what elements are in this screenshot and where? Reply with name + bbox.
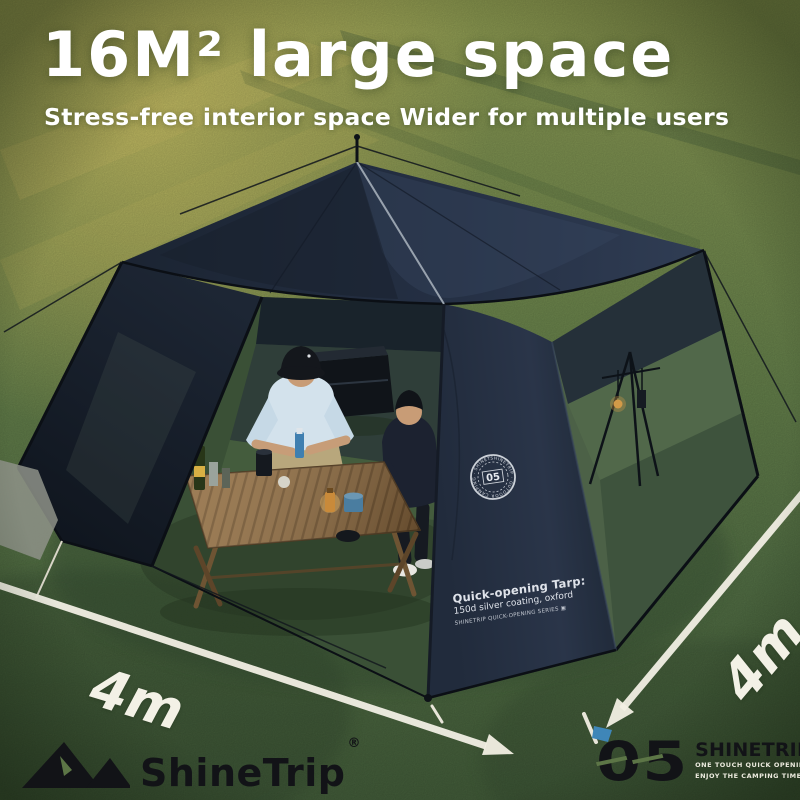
subheadline: Stress-free interior space Wider for mul…: [44, 103, 729, 131]
brand-logo-left: ShineTrip®: [20, 736, 358, 790]
headline: 16M² large space: [42, 22, 674, 87]
brand-number: 05: [596, 738, 689, 786]
registered-mark: ®: [347, 736, 360, 751]
brand-right-name: SHINETRIP: [695, 741, 800, 760]
mountains-icon: [20, 736, 130, 790]
brand-tagline-2: ENJOY THE CAMPING TIME: [695, 771, 800, 782]
brand-name-text: ShineTrip: [140, 751, 345, 795]
brand-right-text: SHINETRIP ONE TOUCH QUICK OPENING ENJOY …: [695, 738, 800, 782]
brand-tagline-1: ONE TOUCH QUICK OPENING: [695, 760, 800, 771]
brand-wordmark: ShineTrip®: [140, 756, 358, 790]
product-photo: SHINETRIP · OUTDOOR CAMPING · SHINETRIP …: [0, 0, 800, 800]
brand-logo-right: 05 SHINETRIP ONE TOUCH QUICK OPENING ENJ…: [596, 738, 800, 786]
